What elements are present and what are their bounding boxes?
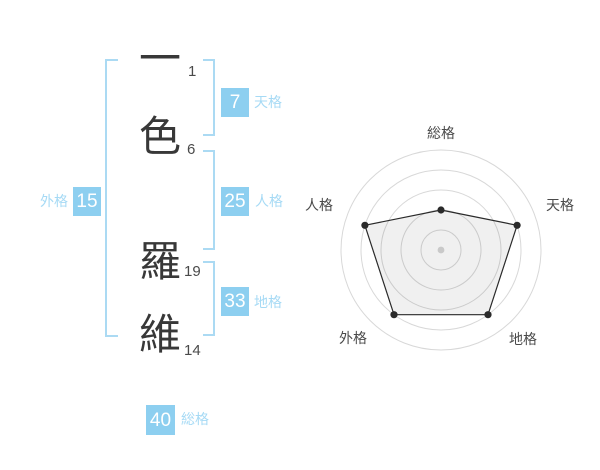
name-char-2: 色 [138, 116, 182, 158]
bracket-chikaku [203, 261, 215, 336]
radar-polygon [365, 210, 517, 315]
tenkaku-value-box: 7 [221, 88, 249, 117]
stroke-count-4: 14 [184, 343, 201, 358]
stroke-count-1: 1 [188, 64, 196, 79]
jinkaku-label: 人格 [255, 194, 283, 208]
name-char-4: 維 [138, 314, 182, 356]
bracket-gaikaku [105, 59, 118, 337]
name-char-3: 羅 [138, 241, 182, 283]
radar-axis-label: 天格 [546, 197, 574, 213]
radar-axis-label: 地格 [509, 331, 537, 347]
soukaku-label: 総格 [181, 412, 209, 426]
gaikaku-label: 外格 [40, 194, 68, 208]
radar-chart-svg: 総格天格地格外格人格 [300, 100, 600, 380]
radar-chart: 総格天格地格外格人格 [300, 100, 600, 380]
radar-data-point [484, 311, 491, 318]
stroke-count-3: 19 [184, 264, 201, 279]
radar-axis-label: 総格 [427, 125, 455, 141]
bracket-jinkaku [203, 150, 215, 250]
name-fortune-panel: 一 色 羅 維 1 6 19 14 7 天格 25 人格 15 外格 33 地格… [0, 0, 600, 470]
jinkaku-value-box: 25 [221, 187, 249, 216]
radar-data-point [361, 222, 368, 229]
gaikaku-value-box: 15 [73, 187, 101, 216]
soukaku-value-box: 40 [146, 405, 175, 435]
chikaku-value-box: 33 [221, 287, 249, 316]
radar-axis-label: 外格 [339, 330, 367, 346]
chikaku-label: 地格 [254, 295, 282, 309]
tenkaku-label: 天格 [254, 95, 282, 109]
radar-data-point [514, 222, 521, 229]
radar-center-dot [438, 247, 445, 254]
radar-data-point [390, 311, 397, 318]
name-char-1: 一 [138, 38, 182, 80]
radar-axis-label: 人格 [305, 197, 333, 213]
radar-data-point [437, 206, 444, 213]
stroke-count-2: 6 [187, 142, 195, 157]
bracket-tenkaku [203, 59, 215, 136]
